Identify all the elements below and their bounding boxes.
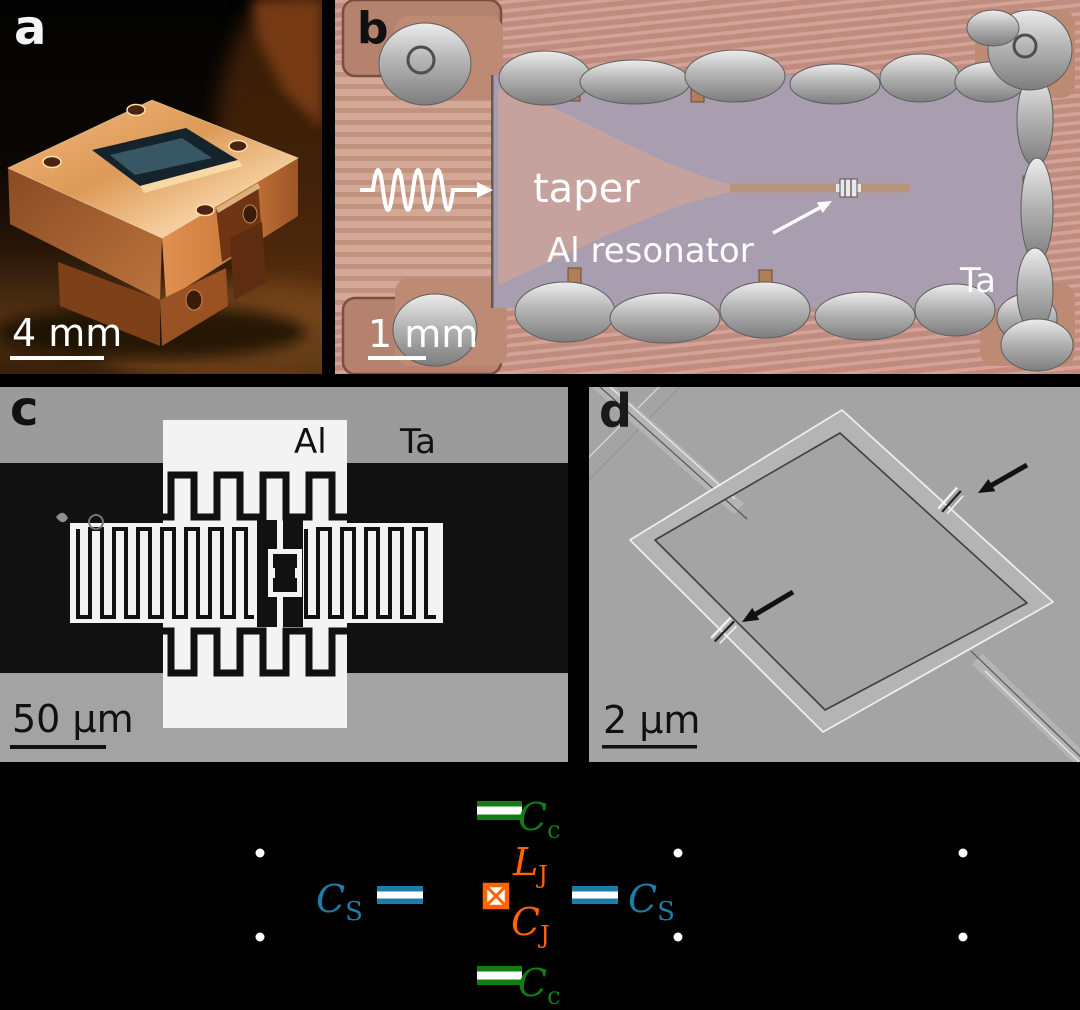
label-cc-bottom: Cc [518,961,561,1010]
panel-d-scale-bar-label: 2 µm [603,698,700,742]
panel-a-scale-bar-label: 4 mm [12,311,122,355]
panel-d-label: d [599,387,632,438]
label-cs-right: CS [628,877,675,927]
panel-a-photo: a 4 mm [0,0,322,374]
label-cs-left: CS [316,877,363,927]
panel-b-photo: b taper Al resonator Ta 1 mm [335,0,1080,374]
capacitor-symbol-cc-bottom [477,966,522,985]
circuit-diagram: Cc Cc CS CS LJ CJ [0,762,1080,1010]
panel-b-scale-bar-line [368,356,426,360]
al-resonator-device [836,179,861,197]
label-lj: LJ [512,840,548,889]
chip-overview-photo: b taper Al resonator Ta 1 mm [335,0,1080,374]
figure: a 4 mm [0,0,1080,1010]
panel-b-scale-bar-label: 1 mm [368,312,478,356]
al-resonator-label: Al resonator [547,231,754,271]
al-material-label: Al [294,422,327,462]
lumped-element-circuit: Cc Cc CS CS LJ CJ [0,762,1080,1010]
panel-c-scale-bar-line [10,745,106,749]
panel-d-scale-bar-line [602,745,697,749]
taper-label: taper [533,166,640,212]
label-cj: CJ [511,900,550,949]
ta-label: Ta [959,261,996,301]
panel-a-scale-bar-line [10,356,104,360]
label-cc-top: Cc [518,795,561,844]
panel-d-sem: d 2 µm [589,387,1080,762]
ta-material-label: Ta [399,422,436,462]
resonator-strip [730,184,910,193]
josephson-junction-symbol [485,885,507,907]
panel-a-label: a [14,0,46,56]
panel-c-label: c [10,387,38,437]
capacitor-symbol-cc-top [477,801,522,820]
copper-holder-photo: a 4 mm [0,0,322,374]
capacitor-micrograph: c Al Ta 50 µm [0,387,568,762]
panel-c-scale-bar-label: 50 µm [12,697,134,741]
junction-box [273,554,297,592]
squid-sem-image: d 2 µm [589,387,1080,762]
capacitor-symbol-cs-right [572,886,618,904]
panel-b-label: b [357,3,389,54]
capacitor-symbol-cs-left [377,886,423,904]
panel-c-micrograph: c Al Ta 50 µm [0,387,568,762]
